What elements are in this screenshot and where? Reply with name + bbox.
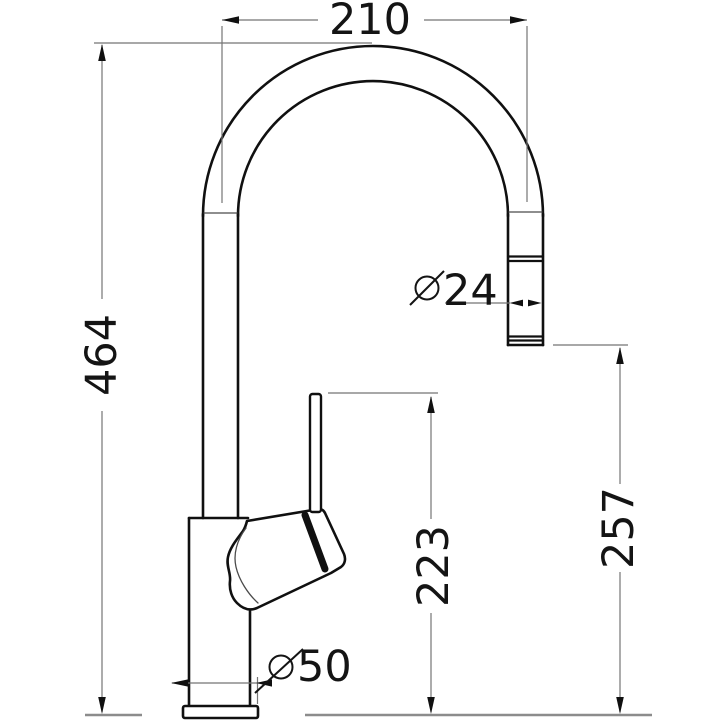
- dimension-spout-diameter: 24: [410, 266, 542, 316]
- arrowhead-left: [222, 16, 239, 24]
- arrowhead-up: [98, 44, 106, 61]
- dimension-spout-width-label: 210: [329, 0, 411, 45]
- dimension-annotations: 210 464 24: [77, 0, 644, 714]
- handle-housing: [228, 509, 345, 609]
- faucet-outline: [183, 46, 543, 718]
- arrowhead-down: [98, 697, 106, 714]
- arrowhead-up: [616, 347, 624, 364]
- arrowhead-down: [427, 697, 435, 714]
- diameter-symbol-icon: [255, 649, 303, 693]
- arrowhead-left: [171, 679, 188, 686]
- spout-arch-outer: [203, 46, 543, 216]
- dimension-spout-diameter-label: 24: [443, 266, 498, 316]
- dimension-overall-height: 464: [77, 43, 372, 714]
- technical-drawing-canvas: 210 464 24: [0, 0, 720, 720]
- arrowhead-up: [427, 396, 435, 413]
- arrowhead-left: [510, 300, 524, 307]
- dimension-outlet-height-label: 257: [594, 487, 644, 569]
- spout-arch-inner: [238, 81, 508, 216]
- diameter-symbol-icon: [410, 271, 444, 305]
- dimension-outlet-height: 257: [553, 345, 644, 714]
- base-flange: [183, 706, 258, 718]
- dimension-base-diameter-label: 50: [297, 642, 352, 692]
- dimension-base-diameter: 50: [171, 642, 352, 704]
- handle-lever: [310, 394, 321, 512]
- dimension-overall-height-label: 464: [77, 314, 127, 396]
- arrowhead-down: [616, 697, 624, 714]
- dimension-handle-height-label: 223: [409, 525, 459, 607]
- arrowhead-right: [528, 300, 542, 307]
- diameter-circle: [270, 656, 293, 679]
- dimension-spout-width: 210: [222, 0, 527, 203]
- arrowhead-right: [510, 16, 527, 24]
- technical-drawing: 210 464 24: [0, 0, 720, 720]
